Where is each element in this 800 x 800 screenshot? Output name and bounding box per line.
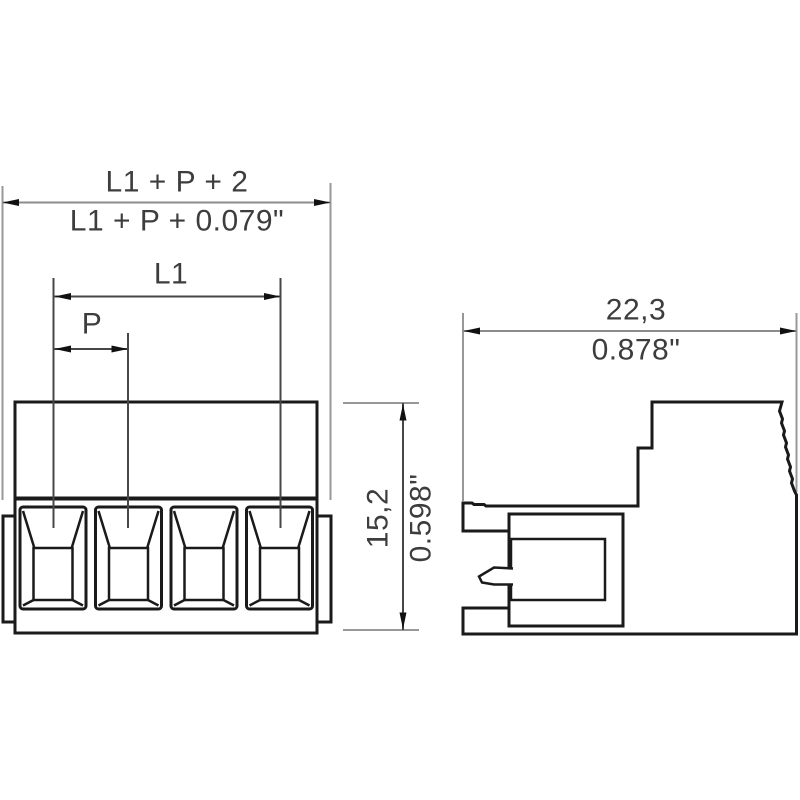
terminal-wire-cavity bbox=[260, 548, 299, 600]
terminal-block-dimension-drawing: L1 + P + 2 L1 + P + 0.079" L1 P 15,2 0.5… bbox=[0, 0, 800, 800]
front-view bbox=[3, 402, 331, 633]
arrow-l1-right bbox=[264, 293, 281, 300]
side-plug-cavity bbox=[511, 539, 605, 600]
arrow-height-top bbox=[400, 404, 407, 421]
arrow-pitch-right bbox=[112, 346, 129, 353]
arrow-l1-left bbox=[55, 293, 72, 300]
label-l1: L1 bbox=[154, 258, 188, 291]
arrow-overall-right bbox=[314, 199, 331, 206]
terminal-port-3 bbox=[171, 507, 237, 609]
terminal-wire-cavity bbox=[34, 548, 73, 600]
arrow-depth-left bbox=[464, 328, 481, 335]
front-mounting-tab-right bbox=[317, 516, 331, 622]
technical-drawing-page: L1 + P + 2 L1 + P + 0.079" L1 P 15,2 0.5… bbox=[0, 0, 800, 800]
terminal-wire-cavity bbox=[185, 548, 224, 600]
label-front-height-inch: 0.598" bbox=[405, 474, 438, 563]
label-side-depth-inch: 0.878" bbox=[592, 334, 681, 367]
label-side-depth-mm: 22,3 bbox=[606, 294, 666, 327]
label-front-height-mm: 15,2 bbox=[362, 488, 395, 548]
side-view bbox=[463, 402, 797, 634]
side-contact-pin bbox=[479, 568, 513, 585]
label-front-overall-mm: L1 + P + 2 bbox=[106, 166, 249, 199]
label-front-overall-inch: L1 + P + 0.079" bbox=[70, 205, 284, 238]
arrow-height-bottom bbox=[400, 613, 407, 630]
terminal-wire-cavity bbox=[109, 548, 148, 600]
arrow-pitch-left bbox=[55, 346, 72, 353]
front-mounting-tab-left bbox=[3, 516, 15, 622]
label-pitch: P bbox=[82, 308, 103, 341]
arrow-overall-left bbox=[3, 199, 20, 206]
arrow-depth-right bbox=[780, 328, 797, 335]
